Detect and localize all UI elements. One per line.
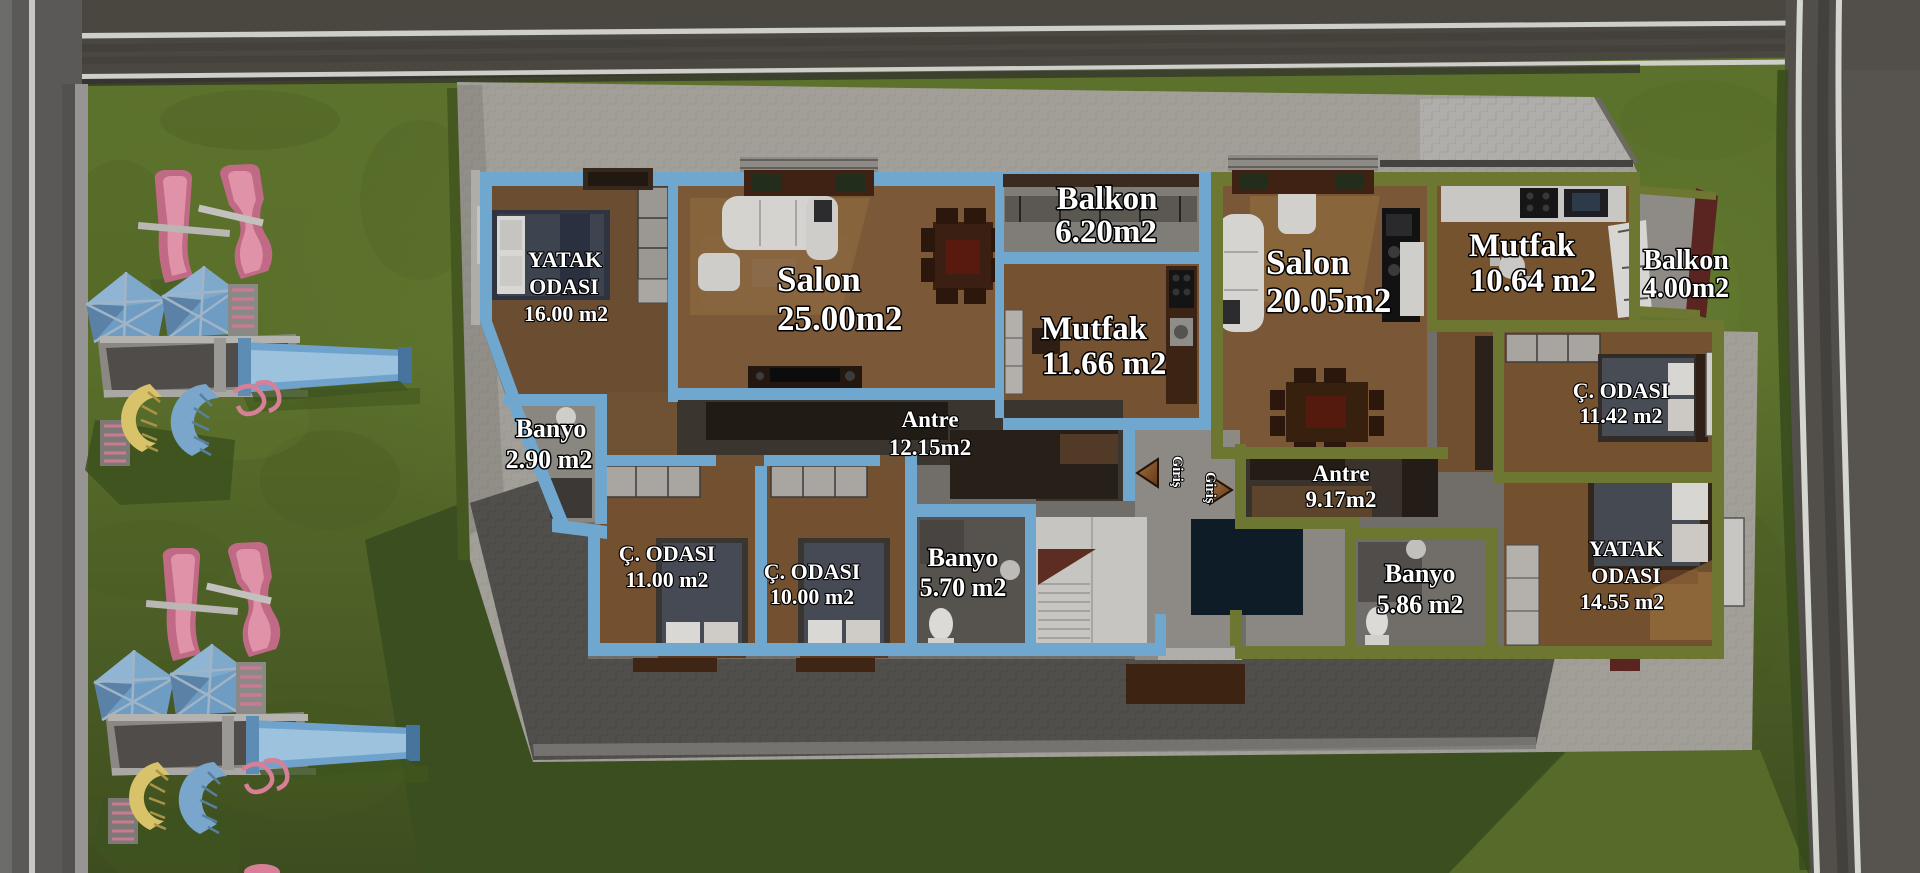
svg-text:11.42 m2: 11.42 m2 [1579,403,1662,428]
svg-text:Balkon: Balkon [1643,245,1729,276]
svg-text:Salon: Salon [1266,243,1350,282]
svg-text:4.00m2: 4.00m2 [1643,273,1729,304]
svg-text:25.00m2: 25.00m2 [777,299,902,338]
svg-text:14.55 m2: 14.55 m2 [1580,589,1664,614]
svg-text:11.66 m2: 11.66 m2 [1042,346,1167,382]
svg-text:5.70 m2: 5.70 m2 [920,573,1007,602]
svg-text:Banyo: Banyo [1385,559,1456,588]
svg-text:ODASI: ODASI [529,274,599,299]
svg-text:Ç. ODASI: Ç. ODASI [1573,378,1670,403]
svg-text:5.86 m2: 5.86 m2 [1377,590,1464,619]
svg-text:Banyo: Banyo [516,414,587,443]
svg-text:Mutfak: Mutfak [1469,228,1576,264]
svg-text:Salon: Salon [777,260,861,299]
svg-text:2.90 m2: 2.90 m2 [506,445,593,474]
svg-text:16.00 m2: 16.00 m2 [524,301,608,326]
svg-text:Ç. ODASI: Ç. ODASI [764,559,861,584]
svg-text:20.05m2: 20.05m2 [1266,281,1391,320]
svg-text:Antre: Antre [901,407,958,432]
svg-text:ODASI: ODASI [1591,563,1661,588]
svg-text:YATAK: YATAK [528,247,602,272]
svg-text:9.17m2: 9.17m2 [1306,487,1377,512]
svg-text:Banyo: Banyo [928,543,999,572]
svg-text:Giriş: Giriş [1202,472,1218,504]
svg-text:10.64 m2: 10.64 m2 [1470,263,1597,299]
svg-text:YATAK: YATAK [1589,536,1663,561]
svg-text:Mutfak: Mutfak [1041,311,1148,347]
svg-text:10.00 m2: 10.00 m2 [770,584,854,609]
svg-text:Balkon: Balkon [1057,181,1158,217]
svg-text:Giriş: Giriş [1169,456,1185,488]
svg-text:Antre: Antre [1312,461,1369,486]
svg-text:Ç. ODASI: Ç. ODASI [619,541,716,566]
svg-text:12.15m2: 12.15m2 [889,435,971,460]
svg-text:11.00 m2: 11.00 m2 [625,567,708,592]
svg-text:6.20m2: 6.20m2 [1055,214,1157,250]
